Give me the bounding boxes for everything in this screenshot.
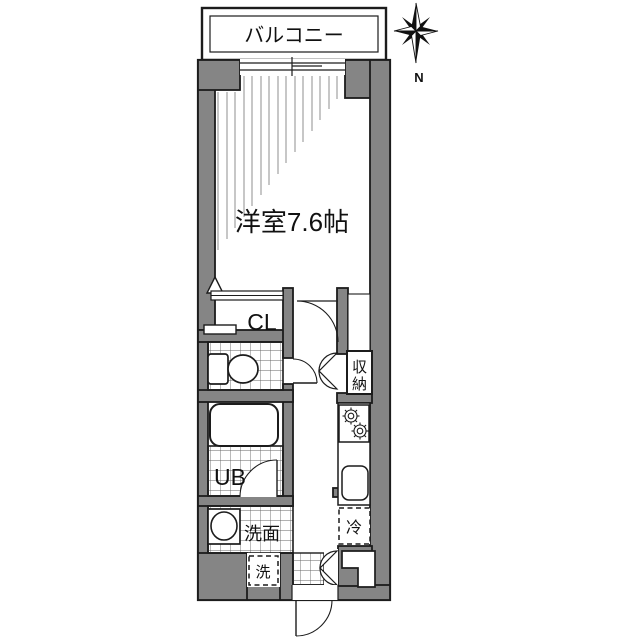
- entrance-opening: [292, 585, 338, 600]
- compass-north-label: N: [414, 70, 423, 85]
- wall-segment: [198, 496, 293, 506]
- balcony-window: [240, 57, 345, 76]
- wall-segment: [198, 553, 247, 600]
- entrance-tile-floor: [293, 553, 324, 585]
- unit-bath-label: UB: [214, 464, 246, 490]
- wall-segment: [198, 60, 240, 90]
- floorplan-drawing: バルコニー N: [0, 0, 640, 640]
- toilet-bowl-icon: [228, 355, 258, 383]
- refrigerator-label: 冷: [346, 519, 362, 537]
- washer-label: 洗: [255, 564, 270, 581]
- pipe-space: [348, 294, 370, 351]
- wall-segment: [370, 60, 390, 600]
- kitchen: [338, 403, 370, 505]
- kitchen-sink-icon: [342, 466, 368, 500]
- balcony: バルコニー: [202, 8, 386, 60]
- balcony-label: バルコニー: [244, 25, 344, 47]
- room-label: 洋室7.6帖: [235, 207, 349, 237]
- refrigerator-slot: 冷: [339, 508, 370, 544]
- unit-bath: UB: [208, 404, 283, 497]
- compass-rose-icon: [394, 3, 438, 63]
- storage-label-top: 収: [352, 359, 367, 376]
- toilet-tank-icon: [208, 354, 228, 384]
- washstand-room: 洗面: [208, 506, 293, 553]
- wall-segment: [280, 553, 293, 600]
- storage-label-bottom: 納: [352, 376, 367, 393]
- wall-segment: [198, 390, 293, 402]
- wall-segment: [337, 288, 348, 354]
- washstand-label: 洗面: [244, 524, 280, 544]
- washer-niche: 洗: [247, 553, 280, 587]
- closet-label: CL: [247, 309, 277, 335]
- wall-segment: [283, 288, 293, 358]
- washbasin-icon: [211, 512, 237, 540]
- bathtub-icon: [210, 404, 278, 446]
- floorplan-page: バルコニー N: [0, 0, 640, 640]
- entrance-door-arc: [296, 600, 332, 636]
- closet-shelf: [204, 325, 236, 334]
